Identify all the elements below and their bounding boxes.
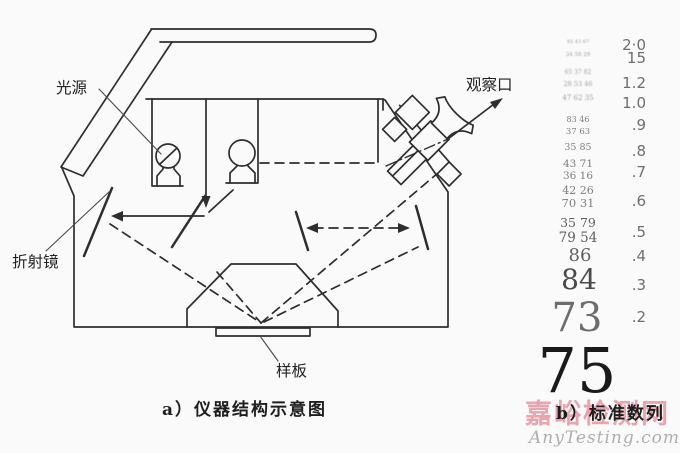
scale-value: .5 (632, 223, 646, 241)
refraction-mirror-leader (46, 191, 110, 251)
light-rays (110, 173, 438, 323)
scale-value: 15 (627, 49, 646, 67)
figure-canvas: 光源 观察口 折射镜 样板 a）仪器结构示意图 85 43 67 34 58 2… (0, 0, 680, 453)
numeral-row: 28 53 46 (564, 80, 593, 88)
observation-arrow-head (490, 98, 503, 109)
scale-value: .4 (632, 247, 646, 265)
standard-number-column: 85 43 67 34 58 29 65 37 82 28 53 46 47 6… (538, 36, 646, 407)
mirror-link-left-head (306, 223, 318, 233)
scale-value: .2 (632, 308, 646, 326)
sample-plate-leader (260, 336, 278, 361)
scale-value: .3 (632, 276, 646, 294)
numeral-row: 47 62 35 (562, 94, 593, 102)
ray-short (209, 190, 233, 212)
carry-handle (151, 29, 376, 42)
observation-port-label: 观察口 (466, 76, 513, 94)
scanned-figure: 光源 观察口 折射镜 样板 a）仪器结构示意图 85 43 67 34 58 2… (0, 0, 680, 453)
numeral-row: 35 85 (564, 142, 591, 153)
scale-value: .6 (632, 192, 646, 210)
sample-plate (216, 328, 310, 336)
numeral-row: 79 54 (559, 230, 598, 246)
light-source-label: 光源 (56, 79, 87, 97)
mirror-center (172, 196, 205, 247)
sample-plate-label: 样板 (276, 362, 307, 380)
caption-a: a）仪器结构示意图 (162, 399, 327, 420)
watermark-domain: AnyTesting.com (527, 428, 680, 448)
scale-value: .7 (632, 163, 646, 181)
mirror-link-right-head (398, 223, 410, 233)
eyepiece-assembly (361, 78, 492, 209)
numeral-row: 35 79 (560, 215, 596, 230)
lamp-1-icon (156, 144, 180, 186)
numeral-row: 75 (538, 334, 617, 407)
numeral-row: 83 46 (567, 115, 590, 124)
numeral-row: 36 16 (563, 170, 593, 182)
top-wall (146, 99, 383, 110)
instrument-diagram: 光源 观察口 折射镜 样板 a）仪器结构示意图 (12, 29, 513, 420)
prism (187, 264, 338, 327)
scale-value: 1.2 (622, 74, 646, 92)
refraction-mirror-label: 折射镜 (12, 252, 59, 271)
numeral-row: 65 37 82 (565, 69, 592, 76)
arrow-left-head (111, 211, 123, 222)
caption-b: b）标准数列 (556, 403, 665, 424)
mirror-a (296, 212, 308, 250)
numeral-row: 43 71 (563, 158, 593, 170)
numeral-row: 34 58 29 (566, 52, 591, 58)
scale-value: .9 (632, 116, 646, 134)
mirror-b (416, 206, 428, 249)
lamp-compartments (152, 99, 378, 199)
scale-value: 1.0 (622, 94, 646, 112)
lamp-2-icon (229, 140, 255, 183)
numeral-row: 37 63 (566, 127, 590, 137)
numeral-row: 70 31 (562, 196, 595, 210)
numeral-row: 84 (561, 263, 597, 296)
mirror-left (84, 188, 112, 256)
scale-value: .8 (632, 142, 646, 160)
numeral-row: 85 43 67 (567, 39, 589, 45)
